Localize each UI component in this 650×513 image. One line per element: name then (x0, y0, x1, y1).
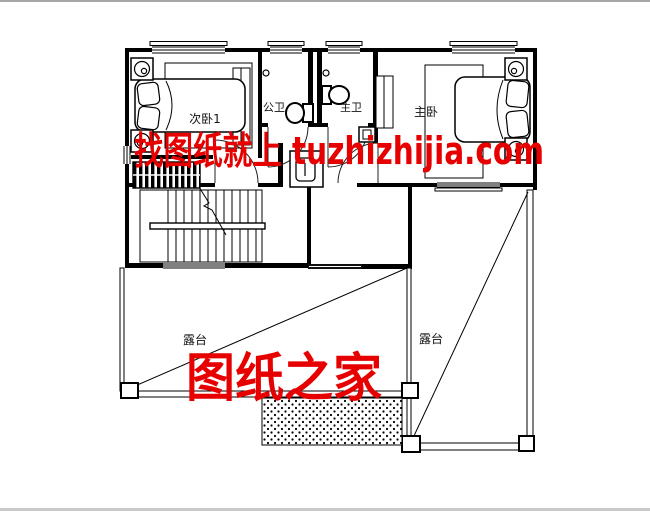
pillow (137, 106, 161, 130)
window-master-bath (326, 42, 362, 55)
nightstand (131, 58, 153, 80)
window-master-south (435, 182, 502, 191)
sill-corridor-south (308, 264, 362, 269)
room-label-master-bedroom: 主卧 (414, 105, 438, 119)
terrace-right (403, 190, 533, 450)
window-stair-south (163, 263, 225, 269)
staircase (140, 187, 265, 262)
floor-drain (323, 70, 329, 76)
nightstand (505, 58, 527, 80)
stair-handrail (150, 223, 265, 229)
room-label-terrace-right: 露台 (419, 331, 443, 346)
room-label-bedroom2: 次卧1 (189, 112, 221, 126)
watermark-tagline: 找图纸就上 tuzhizhijia.com (134, 129, 544, 173)
room-label-master-bath: 主卫 (340, 101, 362, 114)
pillow (137, 82, 161, 106)
floorplan-image: 次卧1 公卫 主卫 主卧 露台 露台 找图纸就上 tuzhizhijia.com… (0, 0, 650, 513)
terrace-right-diagonal (413, 192, 528, 438)
watermark-brand: 图纸之家 (186, 349, 382, 409)
room-label-terrace-left: 露台 (183, 332, 207, 347)
window-bedroom2 (150, 42, 227, 55)
floor-drain (263, 70, 269, 76)
pillow (506, 80, 530, 108)
window-public-bath (268, 42, 304, 55)
toilet-public (286, 103, 313, 123)
room-label-public-bath: 公卫 (263, 101, 285, 114)
window-bedroom2-left-wall (123, 146, 131, 164)
window-master-bedroom (450, 42, 517, 55)
